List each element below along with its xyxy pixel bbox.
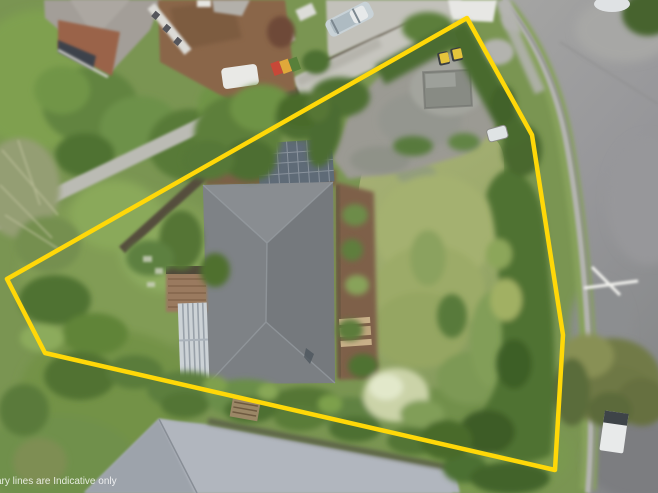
svg-text:ary lines are Indicative only: ary lines are Indicative only — [0, 476, 117, 487]
